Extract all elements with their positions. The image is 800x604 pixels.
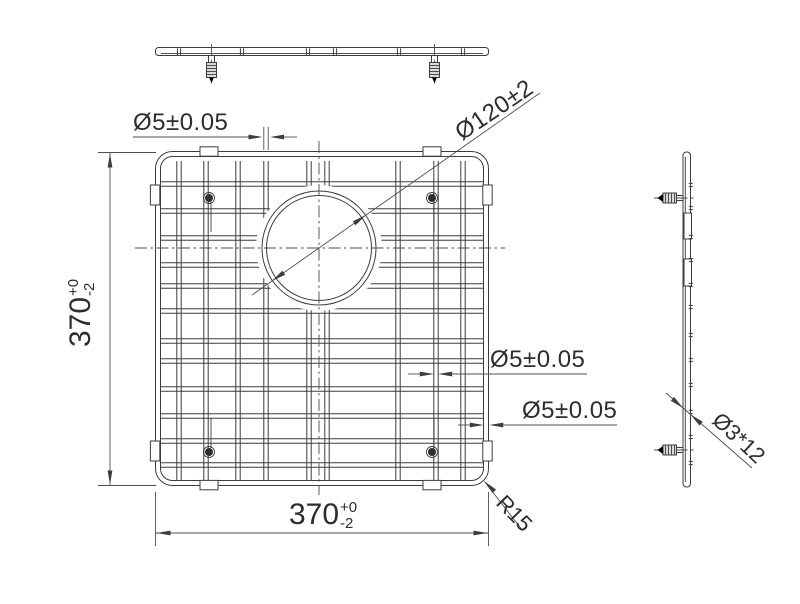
top-view <box>156 44 489 87</box>
dim-wire-top: Ø5±0.05 <box>133 109 297 150</box>
top-view-feet <box>207 44 440 87</box>
foot-tip <box>432 78 437 84</box>
mounting-foot <box>205 448 213 456</box>
dim-label-height-tol-plus: +0 <box>65 279 82 296</box>
rubber-pad-right <box>483 185 492 205</box>
sink-grid-drawing: Ø5±0.05 Ø120±2 Ø5±0.05 Ø5±0.05 <box>0 0 800 604</box>
rubber-pad-right <box>483 441 492 461</box>
dim-label-corner-radius: R15 <box>491 490 537 536</box>
foot-tip <box>209 78 214 84</box>
rubber-pad-bottom <box>200 480 218 489</box>
rubber-pad-left <box>150 185 159 205</box>
dim-label-wire-top: Ø5±0.05 <box>133 109 228 136</box>
dimensions: Ø5±0.05 Ø120±2 Ø5±0.05 Ø5±0.05 <box>64 74 770 546</box>
mounting-foot <box>205 194 213 202</box>
pad-slot <box>684 259 692 286</box>
dim-label-width: 370 <box>289 498 339 531</box>
dim-label-wire-right: Ø5±0.05 <box>522 397 617 424</box>
side-view <box>654 152 696 487</box>
rubber-pad-left <box>150 441 159 461</box>
foot-tip <box>658 194 664 202</box>
mounting-foot <box>428 194 436 202</box>
foot-body <box>430 63 440 78</box>
technical-drawing-page: Ø5±0.05 Ø120±2 Ø5±0.05 Ø5±0.05 <box>0 0 800 604</box>
dim-label-height-tol-minus: -2 <box>81 283 98 296</box>
mounting-foot <box>428 448 436 456</box>
rubber-pad-top <box>423 147 441 156</box>
dim-label-height: 370 <box>64 297 97 347</box>
foot-tip <box>658 446 664 454</box>
dim-height: 370 +0 -2 <box>64 153 156 486</box>
foot-body <box>207 63 217 78</box>
rubber-pad-top <box>200 147 218 156</box>
dim-label-width-tol-plus: +0 <box>340 499 357 516</box>
dim-corner-radius: R15 <box>484 481 537 536</box>
dim-foot: Ø3*12 <box>666 393 770 468</box>
dim-wire-mid: Ø5±0.05 <box>408 346 587 376</box>
dim-label-wire-mid: Ø5±0.05 <box>490 346 585 373</box>
front-view <box>135 141 505 495</box>
dim-width: 370 +0 -2 <box>156 492 489 546</box>
rubber-pad-bottom <box>423 480 441 489</box>
side-view-bar <box>683 152 691 487</box>
dim-wire-right: Ø5±0.05 <box>458 397 617 427</box>
top-view-bar <box>156 48 489 56</box>
dim-label-width-tol-minus: -2 <box>340 515 353 532</box>
dim-label-hole: Ø120±2 <box>450 74 538 146</box>
